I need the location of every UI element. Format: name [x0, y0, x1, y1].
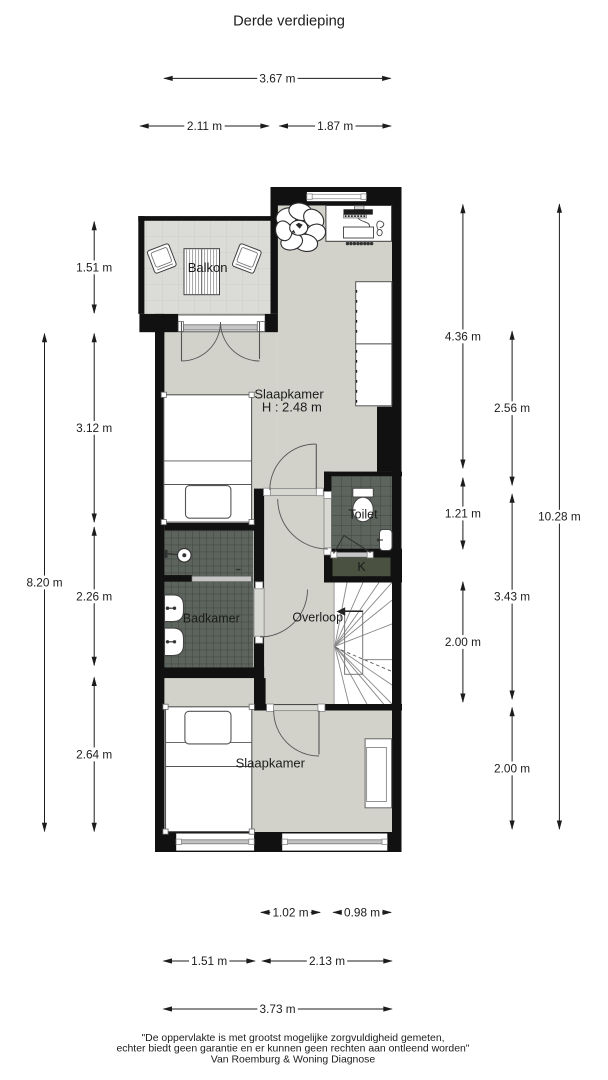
svg-text:4.36 m: 4.36 m: [445, 329, 481, 343]
svg-text:3.67 m: 3.67 m: [259, 71, 295, 85]
svg-text:2.11 m: 2.11 m: [187, 119, 222, 133]
svg-text:Badkamer: Badkamer: [183, 612, 240, 626]
svg-text:Balkon: Balkon: [188, 260, 228, 275]
svg-text:"De oppervlakte is met grootst: "De oppervlakte is met grootst mogelijke…: [141, 1033, 444, 1044]
svg-text:2.13 m: 2.13 m: [309, 954, 345, 968]
svg-text:1.51 m: 1.51 m: [76, 260, 112, 274]
svg-text:0.98 m: 0.98 m: [344, 905, 380, 919]
svg-text:2.26 m: 2.26 m: [76, 589, 112, 603]
svg-text:Overloop: Overloop: [292, 610, 343, 624]
svg-text:H : 2.48 m: H : 2.48 m: [262, 399, 322, 414]
svg-text:3.12 m: 3.12 m: [76, 421, 112, 435]
svg-text:echter biedt geen garantie en: echter biedt geen garantie en er kunnen …: [116, 1044, 469, 1055]
svg-text:2.56 m: 2.56 m: [494, 401, 530, 415]
svg-text:3.73 m: 3.73 m: [260, 1002, 296, 1016]
svg-text:10.28 m: 10.28 m: [538, 510, 581, 524]
svg-text:1.87 m: 1.87 m: [317, 119, 353, 133]
svg-text:3.43 m: 3.43 m: [494, 590, 530, 604]
svg-text:1.51 m: 1.51 m: [191, 954, 227, 968]
svg-text:2.00 m: 2.00 m: [494, 761, 530, 775]
svg-text:8.20 m: 8.20 m: [26, 576, 62, 590]
svg-text:2.64 m: 2.64 m: [76, 747, 112, 761]
svg-text:K: K: [357, 560, 366, 574]
svg-text:1.02 m: 1.02 m: [272, 905, 308, 919]
svg-text:Derde verdieping: Derde verdieping: [233, 13, 345, 29]
svg-text:Slaapkamer: Slaapkamer: [236, 756, 306, 771]
svg-text:1.21 m: 1.21 m: [445, 507, 481, 521]
svg-text:2.00 m: 2.00 m: [445, 635, 481, 649]
svg-text:Toilet: Toilet: [348, 508, 378, 522]
svg-text:Van Roemburg & Woning Diagnose: Van Roemburg & Woning Diagnose: [211, 1054, 376, 1065]
